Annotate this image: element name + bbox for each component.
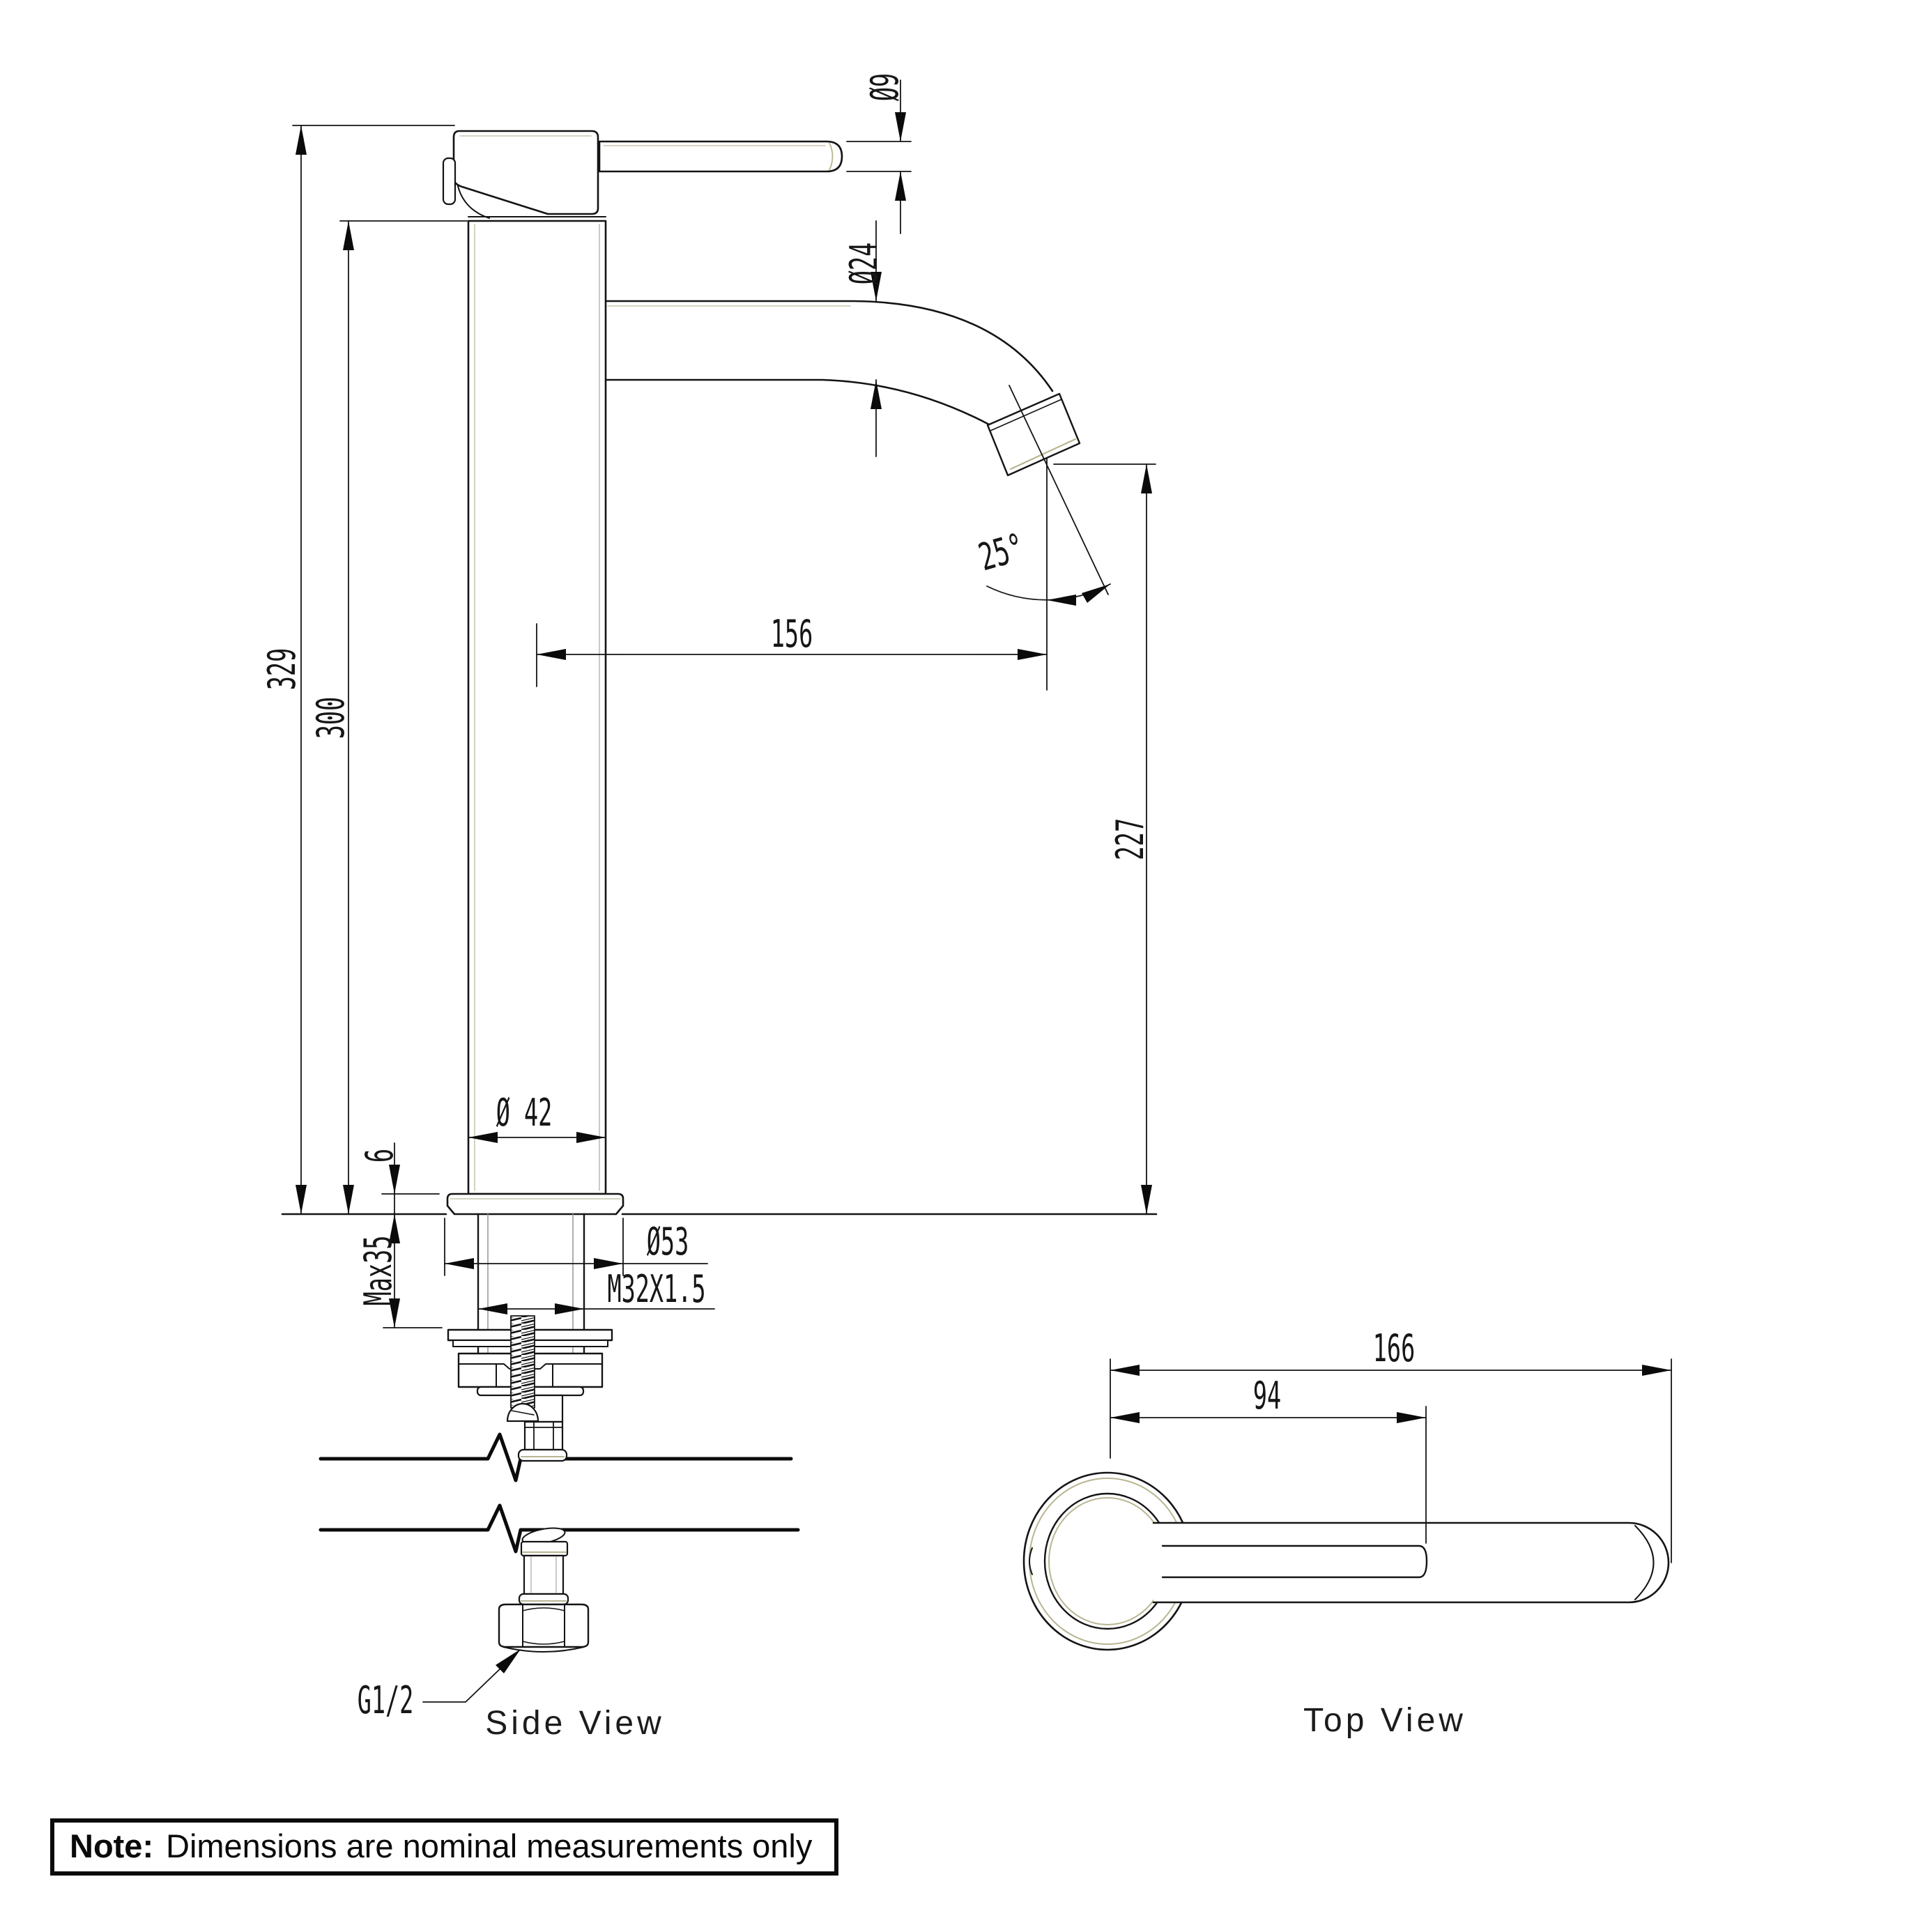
dim-outlet-height: 227 <box>1108 818 1153 860</box>
dim-body-diameter: Ø 42 <box>496 1091 553 1135</box>
dim-handle-diameter: Ø9 <box>863 73 907 101</box>
side-view-caption: Side View <box>485 1705 665 1742</box>
dim-outlet-angle: 25° <box>974 525 1029 579</box>
note-text: Dimensions are nominal measurements only <box>166 1827 813 1864</box>
mixer-head <box>443 131 598 218</box>
dim-flange-height: 6 <box>358 1149 402 1163</box>
dim-spout-diameter: Ø24 <box>842 243 887 284</box>
dim-overall-height: 329 <box>260 648 305 690</box>
arrowheads-side <box>296 112 1152 1673</box>
note-label: Note: <box>70 1827 153 1864</box>
dim-thread-spec: M32X1.5 <box>607 1267 705 1312</box>
top-view: 166 94 Top View <box>1024 1326 1671 1739</box>
dim-spout-reach: 156 <box>771 612 813 657</box>
dim-flange-diameter: Ø53 <box>647 1220 689 1264</box>
set-screw-cover <box>443 158 455 204</box>
dim-max-thickness: Max35 <box>356 1236 401 1306</box>
faucet-dimension-drawing: 329 300 156 227 Ø24 Ø9 Ø 42 Ø53 M32X1.5 … <box>0 0 1932 1932</box>
lever-handle <box>599 141 842 171</box>
dimension-labels-side: 329 300 156 227 Ø24 Ø9 Ø 42 Ø53 M32X1.5 … <box>260 73 1153 1722</box>
dim-spout-reach-top: 94 <box>1253 1374 1281 1418</box>
aerator-tip <box>988 394 1080 475</box>
arrowheads-top <box>1110 1365 1671 1423</box>
note-box: Note: Dimensions are nominal measurement… <box>52 1820 836 1873</box>
hose-ferrule <box>519 1450 567 1461</box>
dimension-labels-top: 166 94 <box>1253 1326 1415 1418</box>
g-half-nut <box>499 1604 588 1647</box>
mounting-stud <box>507 1316 538 1421</box>
spout <box>606 301 1080 475</box>
dim-body-height: 300 <box>309 697 353 739</box>
dim-overall-reach: 166 <box>1373 1326 1415 1371</box>
side-view: 329 300 156 227 Ø24 Ø9 Ø 42 Ø53 M32X1.5 … <box>260 73 1156 1742</box>
dim-inlet-thread: G1/2 <box>358 1678 414 1723</box>
faucet-body <box>468 217 606 1194</box>
top-view-caption: Top View <box>1303 1702 1466 1739</box>
base-flange <box>447 1194 623 1214</box>
technical-drawing-page: 329 300 156 227 Ø24 Ø9 Ø 42 Ø53 M32X1.5 … <box>0 0 1932 1932</box>
spout-top <box>1163 1546 1427 1577</box>
